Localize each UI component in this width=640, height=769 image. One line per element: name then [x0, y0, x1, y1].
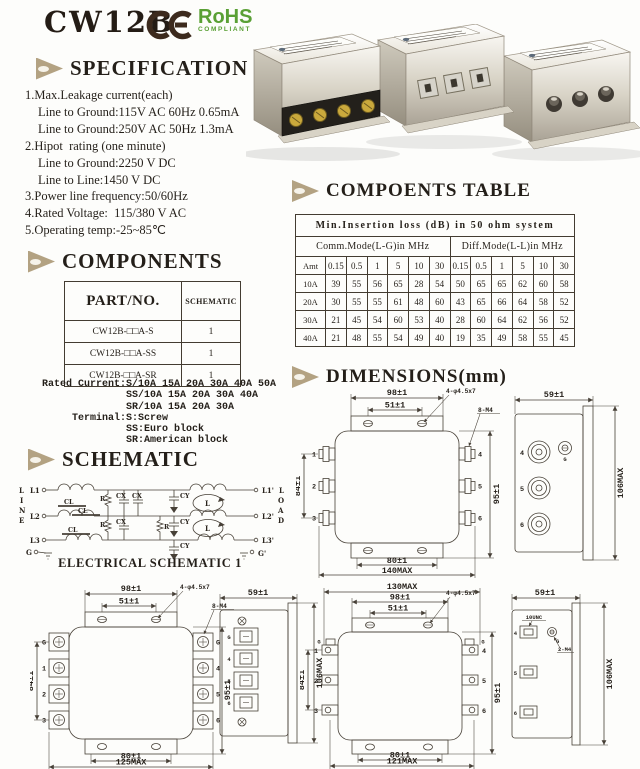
section-title: COMPOENTS TABLE: [326, 180, 531, 202]
svg-text:CY: CY: [180, 519, 190, 526]
svg-text:6: 6: [482, 708, 486, 716]
dim-label: 84±1: [296, 476, 303, 496]
svg-text:L3': L3': [262, 536, 274, 545]
dimension-drawing1-side: 59±1 4 G 5 6 106MAX: [507, 388, 633, 580]
spec-item: 4.Rated Voltage: 115/380 V AC: [25, 205, 295, 222]
rohs-compliant-text: COMPLIANT: [198, 26, 252, 33]
section-dimensions: DIMENSIONS(mm): [292, 366, 507, 388]
spec-item: Line to Ground:115V AC 60Hz 0.65mA: [25, 104, 295, 121]
svg-text:4: 4: [227, 656, 231, 663]
parts-row: CW12B-□□A-SS1: [65, 343, 241, 365]
dim-label: 98±1: [387, 388, 407, 398]
freq-header-row: Amt0.150.51510300.150.5151030: [296, 257, 575, 275]
spec-item: Line to Ground:250V AC 50Hz 1.3mA: [25, 121, 295, 138]
parts-col-schematic: SCHEMATIC: [182, 282, 241, 321]
spec-item: 2.Hipot rating (one minute): [25, 138, 295, 155]
section-components: COMPONENTS: [28, 249, 223, 274]
section-schematic: SCHEMATIC: [28, 447, 199, 472]
parts-row: CW12B-□□A-S1: [65, 321, 241, 343]
comm-mode-header: Comm.Mode(L-G)in MHz: [296, 237, 451, 257]
svg-text:2-M4: 2-M4: [558, 646, 572, 653]
dim-label: 95±1: [492, 484, 502, 504]
svg-text:L3: L3: [30, 536, 40, 545]
dim-label: 106MAX: [616, 467, 626, 499]
spec-item: 3.Power line frequency:50/60Hz: [25, 188, 295, 205]
svg-text:5: 5: [227, 678, 231, 685]
svg-text:O: O: [278, 496, 284, 505]
filter-unit-euro: [366, 24, 522, 149]
svg-text:130MAX: 130MAX: [387, 582, 419, 592]
svg-text:6: 6: [514, 710, 517, 717]
terminal-label: 4: [478, 452, 482, 460]
euro-block-stack: [234, 628, 258, 711]
dimension-drawing3-side: 59±1 10UNC 4 G 2-M4 5 6 106MAX: [508, 588, 616, 758]
terminal-label: G: [563, 456, 567, 463]
svg-text:CX: CX: [116, 493, 126, 500]
spec-item: Line to Ground:2250 V DC: [25, 155, 295, 172]
section-specification: SPECIFICATION: [36, 56, 248, 81]
svg-text:125MAX: 125MAX: [116, 758, 148, 768]
insertion-table-title: Min.Insertion loss (dB) in 50 ohm system: [296, 215, 575, 237]
svg-text:59±1: 59±1: [248, 588, 268, 598]
svg-text:L: L: [19, 486, 24, 495]
svg-text:51±1: 51±1: [388, 604, 408, 614]
svg-text:84±1: 84±1: [300, 670, 307, 690]
dim-label: 59±1: [544, 390, 564, 400]
svg-text:5: 5: [514, 670, 518, 677]
svg-text:R: R: [100, 496, 106, 503]
svg-text:1: 1: [314, 648, 318, 656]
svg-text:L1': L1': [262, 486, 274, 495]
svg-text:CY: CY: [180, 543, 190, 550]
svg-text:2: 2: [42, 692, 46, 700]
dim-label: 98±1: [121, 584, 141, 594]
svg-text:G: G: [227, 634, 231, 641]
section-compoents-table: COMPOENTS TABLE: [292, 180, 531, 202]
svg-text:98±1: 98±1: [390, 593, 410, 603]
svg-text:84±1: 84±1: [30, 671, 36, 691]
schematic-caption: ELECTRICAL SCHEMATIC 1: [30, 556, 270, 571]
section-title: SCHEMATIC: [62, 447, 199, 472]
section-title: COMPONENTS: [62, 249, 223, 274]
svg-text:1: 1: [42, 666, 46, 674]
diff-mode-header: Diff.Mode(L-L)in MHz: [450, 237, 575, 257]
terminal-label: 4: [520, 450, 524, 458]
svg-text:G: G: [42, 640, 46, 648]
section-bullet-icon: [292, 180, 319, 202]
svg-text:4: 4: [482, 648, 486, 656]
euro-block-terminals: [49, 633, 213, 729]
svg-text:4-φ4.5x7: 4-φ4.5x7: [446, 590, 476, 597]
insertion-row: 30A214554605340286064625652: [296, 311, 575, 329]
terminal-studs: [319, 447, 475, 526]
product-photo: [246, 24, 640, 184]
dim-label: 51±1: [119, 597, 139, 607]
rohs-logo: RoHS COMPLIANT: [198, 8, 252, 33]
insertion-row: 40A214855544940193549585545: [296, 329, 575, 347]
parts-table: PART/NO. SCHEMATIC CW12B-□□A-S1CW12B-□□A…: [64, 281, 241, 387]
svg-text:L2: L2: [30, 512, 40, 521]
datasheet-page: CW12B RoHS COMPLIANT: [0, 0, 640, 769]
svg-text:CX: CX: [132, 493, 142, 500]
threads-callout: 8-M4: [478, 407, 493, 414]
svg-text:CL: CL: [68, 527, 78, 534]
terminal-label: 1: [312, 452, 316, 460]
insertion-row: 10A395556652854506565626058: [296, 275, 575, 293]
terminal-label: 6: [478, 516, 482, 524]
faston-tab-terminals: [322, 639, 478, 715]
svg-text:A: A: [277, 506, 284, 515]
svg-text:95±1: 95±1: [493, 683, 503, 703]
terminal-label: 2: [312, 484, 316, 492]
rohs-text: RoHS: [198, 8, 252, 26]
section-bullet-icon: [28, 251, 55, 273]
svg-text:59±1: 59±1: [535, 588, 555, 598]
svg-text:R: R: [100, 522, 106, 529]
insertion-title-row: Min.Insertion loss (dB) in 50 ohm system: [296, 215, 575, 237]
svg-text:106MAX: 106MAX: [605, 658, 615, 690]
svg-text:CY: CY: [180, 493, 190, 500]
svg-text:L: L: [205, 524, 210, 533]
svg-text:L: L: [205, 499, 210, 508]
svg-text:G: G: [481, 639, 485, 646]
svg-text:3: 3: [314, 708, 318, 716]
section-title: SPECIFICATION: [70, 56, 248, 81]
insertion-loss-table: Min.Insertion loss (dB) in 50 ohm system…: [295, 214, 575, 347]
spec-item: Line to Line:1450 V DC: [25, 172, 295, 189]
spec-item: 5.Operating temp:-25~85℃: [25, 222, 295, 239]
electrical-schematic-drawing: LI NE LO AD L1 L2 L3 G CL CL CL R R R CX…: [12, 477, 290, 563]
svg-text:G: G: [317, 639, 321, 646]
svg-text:R: R: [164, 524, 170, 531]
svg-text:5: 5: [482, 678, 486, 686]
svg-text:I: I: [20, 496, 23, 505]
holes-callout: 4-φ4.5x7: [446, 388, 476, 395]
svg-text:121MAX: 121MAX: [387, 757, 419, 767]
terminal-label: 5: [520, 486, 524, 494]
svg-text:4: 4: [514, 630, 518, 637]
terminal-label: 5: [478, 484, 482, 492]
dim-label: 51±1: [385, 401, 405, 411]
svg-text:L1: L1: [30, 486, 40, 495]
parts-col-partno: PART/NO.: [65, 282, 182, 321]
insertion-group-row: Comm.Mode(L-G)in MHz Diff.Mode(L-L)in MH…: [296, 237, 575, 257]
dimension-drawing3-front: 130MAX 98±1 51±1 G 1 2 3 G 4 5 6: [300, 582, 506, 769]
svg-text:N: N: [19, 506, 26, 515]
terminal-label: 6: [520, 522, 524, 530]
svg-text:L: L: [279, 486, 284, 495]
svg-text:2: 2: [314, 678, 318, 686]
svg-text:CL: CL: [78, 508, 88, 515]
section-bullet-icon: [36, 58, 63, 80]
spec-item: 1.Max.Leakage current(each): [25, 87, 295, 104]
ce-mark-icon: [146, 10, 194, 40]
svg-text:3: 3: [42, 718, 46, 726]
svg-text:D: D: [278, 516, 284, 525]
svg-text:6: 6: [227, 700, 230, 707]
svg-text:4-φ4.5x7: 4-φ4.5x7: [180, 584, 210, 591]
section-title: DIMENSIONS(mm): [326, 366, 507, 388]
dim-label: 80±1: [387, 556, 407, 566]
insertion-row: 20A305555614860436566645852: [296, 293, 575, 311]
svg-text:CX: CX: [116, 519, 126, 526]
terminal-label: 3: [312, 516, 316, 524]
svg-text:10UNC: 10UNC: [526, 614, 543, 621]
components-notes: Rated Current:S/10A 15A 20A 30A 40A 50A …: [42, 379, 276, 447]
svg-text:L2': L2': [262, 512, 274, 521]
svg-text:CL: CL: [64, 499, 74, 506]
dimension-drawing1-front: 98±1 51±1 1 2 3 4 5 6 84±1 95±1: [296, 386, 508, 582]
parts-header-row: PART/NO. SCHEMATIC: [65, 282, 241, 321]
dim-label: 140MAX: [382, 566, 414, 576]
section-bullet-icon: [28, 449, 55, 471]
section-bullet-icon: [292, 366, 319, 388]
svg-text:E: E: [19, 516, 24, 525]
specification-list: 1.Max.Leakage current(each)Line to Groun…: [25, 87, 295, 239]
dimension-drawing2-front: 98±1 51±1 G 1 2 3 G 4 5 6 84±1: [30, 584, 242, 769]
